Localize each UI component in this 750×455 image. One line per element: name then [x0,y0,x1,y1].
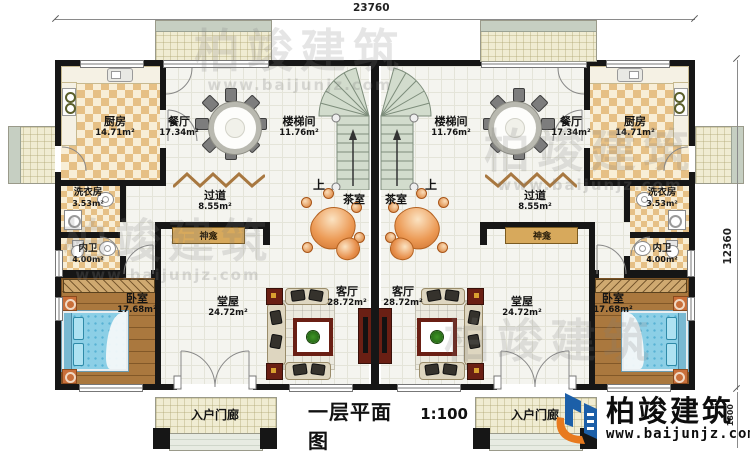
exterior-wall [55,60,61,390]
coffee-table-icon [293,318,333,356]
cushion-icon [269,310,282,326]
nightstand-icon [673,369,688,384]
stairs-up-label: 上 [425,176,437,193]
window [606,60,670,68]
top-dimension-line [55,19,695,20]
room-name: 餐厅 [560,116,582,129]
nightstand-icon [62,296,77,311]
room-label-corridor: 过道 8.55m² [173,190,257,212]
room-area: 17.34m² [159,129,198,139]
wall [263,229,270,245]
top-dimension-label: 23760 [353,2,390,14]
drawing-title: 一层平面图 [308,396,412,454]
room-area: 28.72m² [383,299,422,309]
room-name: 厨房 [624,116,646,129]
room-name: 茶室 [385,194,407,207]
drawing-scale: 1:100 [420,405,468,423]
porch-post [473,428,490,449]
stairs-up-label: 上 [313,176,325,193]
room-area: 24.72m² [208,309,247,319]
brand-text: 柏竣建筑 www.baijunjz.com [606,396,750,442]
room-label-laundry: 洗衣房 3.53m² [57,188,119,208]
end-table-icon [266,363,283,380]
room-label-laundry: 洗衣房 3.53m² [631,188,693,208]
bed-icon [62,311,128,371]
stove-icon [62,88,76,116]
tea-stool-icon [302,242,313,253]
terrace-edge [481,21,596,32]
room-label-toilet: 内卫 4.00m² [631,244,693,264]
end-table-icon [467,363,484,380]
room-area: 11.76m² [279,129,318,139]
shrine: 神龛 [172,227,245,244]
cushion-icon [467,334,480,350]
room-name: 厨房 [104,116,126,129]
room-label-living: 客厅 28.72m² [361,286,445,308]
room-name: 茶室 [343,194,365,207]
room-name: 堂屋 [217,296,239,309]
tv-icon [382,317,387,353]
unit-right: 神龛 [375,60,695,390]
unit-left-graphics: 神龛 [55,60,375,390]
cushion-icon [444,289,459,302]
porch-post [260,428,277,449]
washer-icon [668,210,686,230]
door-arc [596,244,627,275]
room-name: 内卫 [78,244,97,255]
room-area: 8.55m² [198,203,232,213]
right-dimension-line [737,60,738,390]
window [80,60,144,68]
wall [480,229,487,245]
cushion-icon [290,289,305,302]
wall [61,270,123,278]
room-label-bedroom: 卧室 17.68m² [95,293,179,315]
room-name: 堂屋 [511,296,533,309]
side-porch-left [8,126,57,184]
room-area: 14.71m² [95,129,134,139]
title-block: 一层平面图 1:100 本层建筑面积:304.34m² 本栋建筑面积:608.6… [282,396,472,455]
door-arc [663,146,689,172]
room-area: 4.00m² [646,255,678,264]
wardrobe-icon [63,279,155,293]
room-name: 内卫 [652,244,671,255]
coffee-table-icon [417,318,457,356]
room-name: 过道 [204,190,226,203]
shrine: 神龛 [505,227,578,244]
room-label-tea: 茶室 [365,194,427,207]
party-wall [371,60,379,390]
right-dimension-label: 12360 [722,228,734,265]
tea-stool-icon [437,242,448,253]
room-area: 3.53m² [72,199,104,208]
room-area: 14.71m² [615,129,654,139]
drawing-title-row: 一层平面图 1:100 [282,396,472,455]
bed-icon [622,311,688,371]
nightstand-icon [673,296,688,311]
cushion-icon [442,363,457,376]
room-area: 8.55m² [518,203,552,213]
terrace-left [155,20,272,62]
room-name: 客厅 [392,286,414,299]
brand-name: 柏竣建筑 [606,396,734,426]
porch-post [153,428,170,449]
brand-logo-icon [551,387,603,451]
room-label-stair: 楼梯间 11.76m² [405,116,497,138]
room-name: 洗衣房 [74,188,103,199]
room-area: 17.68m² [117,306,156,316]
room-name: 过道 [524,190,546,203]
terrace-right [480,20,597,62]
terrace-edge [156,21,271,32]
room-label-dining: 餐厅 17.34m² [529,116,613,138]
room-label-hall: 堂屋 24.72m² [186,296,270,318]
room-label-toilet: 内卫 4.00m² [57,244,119,264]
room-area: 3.53m² [646,199,678,208]
plant-icon [431,331,443,343]
room-name: 卧室 [602,293,624,306]
room-area: 17.34m² [551,129,590,139]
exterior-wall [689,60,695,390]
room-area: 11.76m² [431,129,470,139]
wall [584,180,689,186]
kitchen-sink-icon [107,68,133,82]
brand-logo: 柏竣建筑 www.baijunjz.com [551,387,750,451]
room-label-stair: 楼梯间 11.76m² [253,116,345,138]
tea-stool-icon [301,197,312,208]
entry-double-door [493,345,577,390]
room-area: 24.72m² [502,309,541,319]
entry-porch-label: 入户门廊 [173,406,257,423]
door-arc [557,67,585,95]
washer-icon [64,210,82,230]
floorplan-sheet: 23760 12360 1800 柏竣建筑 www.baijunjz.com 柏… [0,0,750,455]
side-porch-edge [9,127,21,183]
window [79,384,143,392]
room-name: 洗衣房 [648,188,677,199]
room-name: 卧室 [126,293,148,306]
wall [120,186,126,222]
room-name: 餐厅 [168,116,190,129]
room-label-dining: 餐厅 17.34m² [137,116,221,138]
stove-icon [674,88,688,116]
room-area: 17.68m² [593,306,632,316]
room-name: 楼梯间 [435,116,468,129]
wardrobe-icon [595,279,687,293]
dimension-tick [691,15,698,22]
entry-double-door [173,345,257,390]
kitchen-sink-icon [617,68,643,82]
brand-website: www.baijunjz.com [606,426,750,442]
door-arc [123,244,154,275]
window [687,297,695,321]
unit-right-graphics: 神龛 [375,60,695,390]
room-area: 4.00m² [72,255,104,264]
room-label-bedroom: 卧室 17.68m² [571,293,655,315]
shrine-label: 神龛 [533,229,551,242]
wall [627,270,689,278]
window [55,297,63,321]
building-plan: 神龛 [55,60,695,390]
cushion-icon [424,363,439,376]
cushion-icon [292,363,307,376]
shrine-label: 神龛 [199,229,217,242]
plant-icon [307,331,319,343]
window [289,384,353,392]
tv-icon [363,317,368,353]
unit-left: 神龛 [55,60,375,390]
nightstand-icon [62,369,77,384]
room-label-hall: 堂屋 24.72m² [480,296,564,318]
tea-stool-icon [438,197,449,208]
wall [624,186,630,222]
door-arc [61,146,87,172]
cushion-icon [310,363,325,376]
room-name: 客厅 [336,286,358,299]
window [397,384,461,392]
wall [61,180,166,186]
room-name: 楼梯间 [283,116,316,129]
room-label-corridor: 过道 8.55m² [493,190,577,212]
entry-steps-left [169,433,263,451]
door-arc [165,67,193,95]
